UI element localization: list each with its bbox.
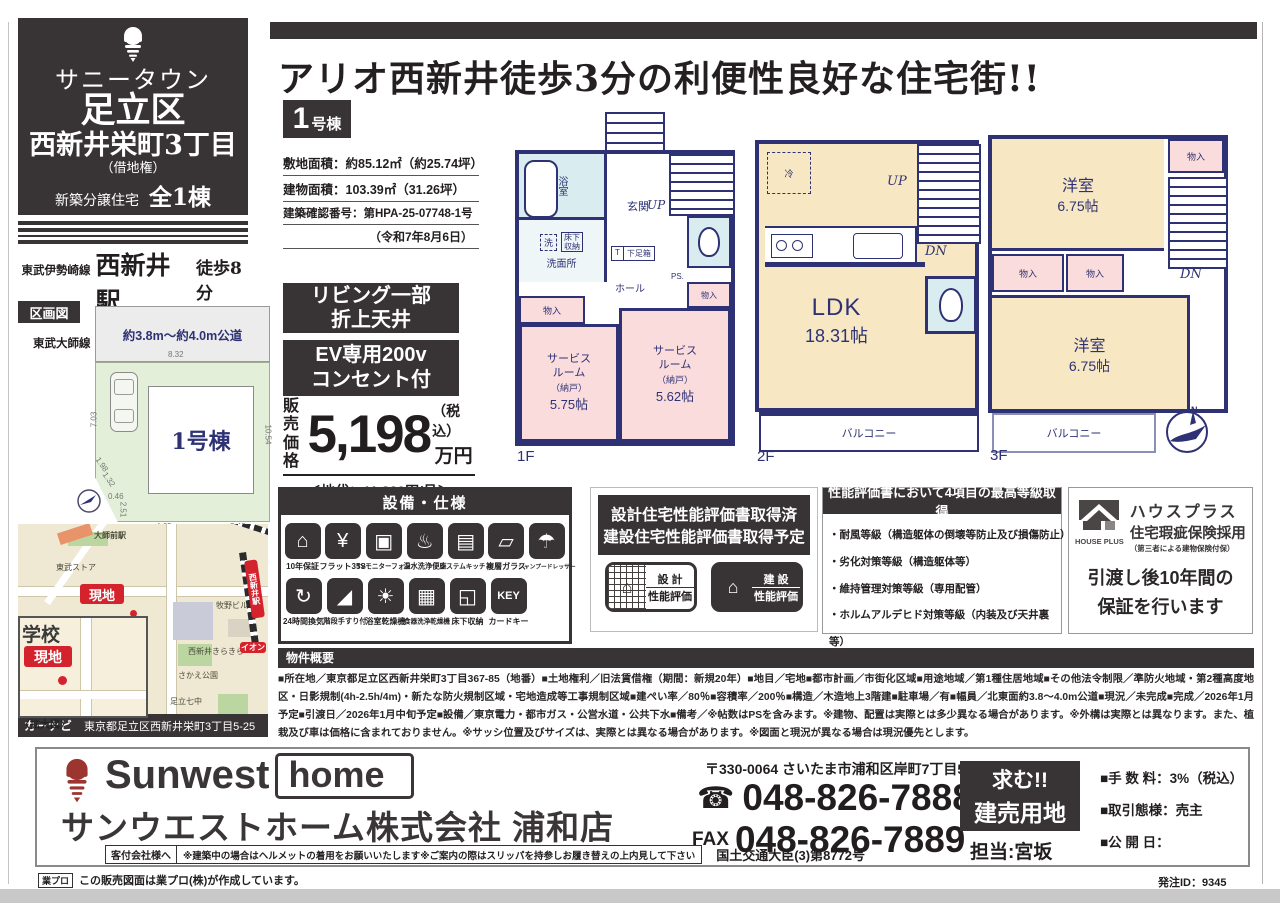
map-inset: 学校 現地: [18, 616, 148, 718]
map-label-daishimae: 大師前駅: [94, 530, 126, 541]
stair-handrail-icon: ◢: [327, 578, 363, 614]
property-overview: 物件概要 ■所在地／東京都足立区西新井栄町3丁目367-85（地番）■土地権利／…: [278, 648, 1254, 743]
dim-diag-3: 0.46: [108, 492, 124, 501]
floorplan-2f: 冷 UP DN LDK 18.31帖: [755, 140, 983, 462]
overview-text: ■所在地／東京都足立区西新井栄町3丁目367-85（地番）■土地権利／旧法賃借権…: [278, 671, 1254, 743]
ventilation-24h-icon: ↻: [286, 578, 322, 614]
room-underfloor-storage: 床下 収納: [561, 232, 583, 252]
logo-sunwest: Sunwest: [105, 753, 269, 798]
serviceroom1-name: サービス ルーム: [547, 353, 591, 381]
compass-icon: N: [1160, 403, 1214, 457]
credit-line: 業プロ この販売図面は業プロ(株)が作成しています。: [38, 872, 305, 888]
price-block: 販売 価格 5,198 （税込） 万円 ＜地代：11,820円/月＞: [283, 398, 475, 501]
car-navi-address: 東京都足立区西新井栄町3丁目5-25: [84, 718, 255, 734]
company-name: サンウエストホーム株式会社 浦和店: [61, 801, 614, 849]
property-type-row: 新築分譲住宅 全1棟: [18, 178, 248, 212]
order-id: 発注ID：9345: [1158, 874, 1226, 890]
plot-building: 1号棟: [148, 386, 254, 494]
room-entrance: 玄関: [627, 198, 649, 214]
fee-line: ■手 数 料：3%（税込）: [1100, 767, 1243, 787]
want-land-box: 求む!! 建売用地: [960, 761, 1080, 831]
shoe-t: T: [611, 246, 624, 261]
bath-dryer-icon: ☀: [368, 578, 404, 614]
leasehold-note: （借地権）: [18, 161, 248, 178]
warranty-10y-icon: ⌂: [285, 523, 321, 559]
inset-enlarge-label: 〈拡大図〉: [20, 716, 70, 731]
balcony-3f: バルコニー: [992, 413, 1156, 453]
construction-badge-house-icon: ⌂: [714, 565, 752, 609]
map-label-ion: イオン: [240, 642, 266, 653]
evaluation-badges: ⌂ 設 計 性能評価 ⌂ 建 設 性能評価: [591, 562, 817, 612]
floor-label-2f: 2F: [757, 448, 775, 465]
feature-box-ev: EV専用200v コンセント付: [283, 340, 459, 396]
closet-1f-right: 物入: [701, 290, 717, 301]
property-town: 西新井栄町3丁目: [18, 130, 248, 161]
floor-label-1f: 1F: [517, 448, 535, 465]
map-label-kirakira: 西新井きらきら: [188, 646, 244, 657]
grades-header: 性能評価書において4項目の最高等級取得: [823, 488, 1061, 514]
price-tax: （税込）: [432, 401, 475, 441]
room3f-1-name: 洋室: [1062, 172, 1094, 196]
entrance-porch: [605, 112, 665, 154]
card-key-icon: KEY: [491, 578, 527, 614]
feature-box-ceiling: リビング一部 折上天井: [283, 283, 459, 333]
houseplus-logo-row: HOUSE PLUS ハウスプラス 住宅瑕疵保険採用 （第三者による建物保険付保…: [1069, 488, 1252, 554]
grade-deterioration: ・劣化対策等級（構造躯体等）: [829, 549, 1055, 576]
grades-box: 性能評価書において4項目の最高等級取得 ・耐風等級（構造躯体の倒壊等防止及び損傷…: [822, 487, 1062, 634]
shoe-box-label: 下足箱: [624, 246, 655, 261]
total-units: 全1棟: [149, 178, 211, 212]
evaluation-header: 設計住宅性能評価書取得済 建設住宅性能評価書取得予定: [598, 495, 810, 555]
equipment-box: 設備・仕様 ⌂10年保証 ¥フラット35S ▣TVモニターフォン ♨温水洗浄便座…: [278, 487, 572, 644]
stairs-dn-3f: DN: [1180, 267, 1202, 282]
ldk-size: 18.31帖: [805, 322, 868, 348]
price-row: 販売 価格 5,198 （税込） 万円: [283, 398, 475, 476]
stairs-up-2f: UP: [887, 174, 907, 189]
top-accent-bar: [270, 22, 1257, 39]
fax-number: 048-826-7889: [735, 819, 965, 861]
kitchen-counter: [765, 226, 917, 266]
want-line1: 求む!!: [992, 764, 1048, 794]
ps-label: PS.: [671, 272, 684, 281]
closet-3f-mid1: 物入: [1019, 267, 1037, 280]
equipment-row-1: ⌂10年保証 ¥フラット35S ▣TVモニターフォン ♨温水洗浄便座 ▤システム…: [281, 515, 569, 572]
map-label-sakae-park: さかえ公園: [178, 670, 218, 681]
room-hall: ホール: [615, 280, 645, 295]
warranty-line2: 住宅瑕疵保険採用: [1130, 522, 1246, 543]
notice-text: ※建築中の場合はヘルメットの着用をお願いいたします※ご案内の際はスリッパを持参し…: [177, 845, 702, 864]
plot-compass-icon: [76, 488, 102, 514]
flat35s-icon: ¥: [325, 523, 361, 559]
dim-left: 7.03: [89, 412, 98, 428]
room3f-2-size: 6.75帖: [1069, 356, 1110, 376]
unit-badge: 1 号棟: [283, 100, 351, 138]
fridge-label: 冷: [784, 167, 793, 180]
washlet-icon: ♨: [407, 523, 443, 559]
evaluation-line1: 設計住宅性能評価書取得済: [602, 503, 806, 525]
sunwest-lamp-icon: [59, 757, 95, 803]
room3f-2-name: 洋室: [1073, 332, 1105, 356]
spec-confirmation-date: （令和7年8月6日）: [283, 225, 479, 249]
contact-person: 担当:宮坂: [970, 837, 1052, 864]
tel-number: 048-826-7888: [742, 777, 972, 819]
station-walk-1: 徒歩8分: [196, 254, 256, 304]
overview-header: 物件概要: [278, 648, 1254, 668]
warranty-line1: ハウスプラス: [1130, 498, 1246, 522]
property-area: 足立区: [18, 93, 248, 130]
room-washroom: 洗面所: [547, 255, 577, 270]
divider-stripes: [18, 221, 248, 244]
dim-diag-4: 2.51: [118, 502, 127, 518]
stairs-dn-2f: DN: [925, 244, 947, 259]
design-badge-house-icon: ⌂: [608, 565, 646, 609]
houseplus-house-icon: [1077, 498, 1121, 532]
lamp-icon: [116, 26, 150, 62]
evaluation-line2: 建設住宅性能評価書取得予定: [602, 525, 806, 547]
tv-monitor-phone-icon: ▣: [366, 523, 402, 559]
page-bottom-strip: [0, 889, 1280, 903]
postal-address: 〒330-0064 さいたま市浦和区岸町7丁目5-4: [705, 759, 978, 779]
footer-box: Sunwest home サンウエストホーム株式会社 浦和店 客付会社様へ ※建…: [35, 747, 1250, 867]
page-edge-left: [8, 22, 9, 884]
unit-suffix: 号棟: [311, 113, 341, 134]
map-label-tobu-store: 東武ストア: [56, 562, 96, 573]
sunwest-logo: Sunwest home: [105, 753, 414, 799]
spec-list: 敷地面積：約85.12㎡（約25.74坪） 建物面積：103.39㎡（31.26…: [283, 150, 479, 249]
dishwasher-icon: ▦: [409, 578, 445, 614]
car-icon: [110, 372, 138, 432]
flyer-page: サニータウン 足立区 西新井栄町3丁目 （借地権） 新築分譲住宅 全1棟 東武伊…: [0, 0, 1280, 903]
plot-section-label: 区画図: [18, 301, 80, 323]
system-kitchen-icon: ▤: [448, 523, 484, 559]
deal-type-line: ■取引態様：売主: [1100, 799, 1203, 819]
headline: アリオ西新井徒歩3分の利便性良好な住宅街!!: [278, 50, 1041, 102]
warranty-box: HOUSE PLUS ハウスプラス 住宅瑕疵保険採用 （第三者による建物保険付保…: [1068, 487, 1253, 634]
price-unit-stack: （税込） 万円: [432, 401, 475, 468]
price-amount: 5,198: [308, 408, 431, 461]
design-evaluation-badge: ⌂ 設 計 性能評価: [605, 562, 697, 612]
closet-3f-top: 物入: [1187, 150, 1205, 163]
gyopro-logo: 業プロ: [38, 873, 73, 888]
construction-evaluation-badge: ⌂ 建 設 性能評価: [711, 562, 803, 612]
room-laundry: 洗: [540, 234, 557, 251]
shoe-box: T 下足箱: [611, 246, 655, 261]
grade-maintenance: ・維持管理対策等級（専用配管）: [829, 576, 1055, 603]
fax-row: FAX 048-826-7889: [692, 819, 965, 861]
area-map: 大師前駅 西新井駅 東武ストア アーク東山クリニック 牧野ビル 西新井きらきら …: [18, 524, 268, 737]
fax-label: FAX: [692, 829, 729, 851]
closet-1f-left: 物入: [543, 304, 561, 317]
spec-confirmation-no: 建築確認番号：第HPA-25-07748-1号: [283, 202, 479, 225]
room3f-1-size: 6.75帖: [1057, 196, 1098, 216]
phone-icon: ☎: [697, 781, 734, 816]
houseplus-logo-text: HOUSE PLUS: [1075, 537, 1124, 546]
serviceroom2-name: サービス ルーム: [653, 345, 697, 373]
dim-right: 10.54: [264, 424, 273, 444]
page-edge-right: [1262, 22, 1263, 884]
double-glazing-icon: ▱: [488, 523, 524, 559]
serviceroom1-size: 5.75帖: [550, 394, 588, 413]
shampoo-dresser-icon: ☂: [529, 523, 565, 559]
want-line2: 建売用地: [974, 794, 1066, 828]
unit-number: 1: [293, 102, 310, 136]
notice-label: 客付会社様へ: [105, 845, 177, 864]
ldk-name: LDK: [805, 294, 868, 322]
site-badge-inset: 現地: [24, 646, 72, 667]
warranty-body: 引渡し後10年間の 保証を行います: [1069, 564, 1252, 622]
site-dot-inset: [58, 676, 67, 685]
equipment-header: 設備・仕様: [281, 490, 569, 515]
serviceroom2-sub: （納戸）: [657, 373, 693, 386]
grade-wind: ・耐風等級（構造躯体の倒壊等防止及び損傷防止）: [829, 522, 1055, 549]
balcony-2f: バルコニー: [759, 412, 979, 452]
credit-text: この販売図面は業プロ(株)が作成しています。: [79, 872, 305, 888]
floorplan-1f: 浴室 洗 床下 収納 洗面所 玄関 T 下足箱 UP: [515, 112, 743, 464]
closet-3f-mid2: 物入: [1086, 267, 1104, 280]
rail-line-1: 東武伊勢崎線: [18, 262, 91, 278]
site-badge-main: 現地: [80, 584, 124, 604]
inset-school-label: 学校: [22, 620, 60, 647]
spec-building-area: 建物面積：103.39㎡（31.26坪）: [283, 176, 479, 202]
warranty-line3: （第三者による建物保険付保）: [1130, 543, 1246, 554]
serviceroom2-size: 5.62帖: [656, 386, 694, 405]
price-unit: 万円: [435, 441, 473, 468]
map-label-makino: 牧野ビル: [216, 600, 248, 611]
svg-text:N: N: [1191, 405, 1198, 415]
stairs-up-1f: UP: [647, 198, 665, 212]
plot-diagram: 約3.8m～約4.0m公道 1号棟 8.32 7.03 10.54 4.65 2…: [18, 300, 268, 522]
dim-top: 8.32: [168, 350, 184, 359]
railway-line: [139, 524, 268, 543]
floorplan-3f: 洋室 6.75帖 物入 DN 物入 物入 洋室 6.75帖 バルコニ: [988, 135, 1233, 465]
map-label-adachi7: 足立七中: [170, 696, 202, 707]
logo-home: home: [275, 753, 413, 799]
underfloor-storage-icon: ◱: [450, 578, 486, 614]
room-ldk: LDK 18.31帖: [805, 294, 868, 348]
grades-list: ・耐風等級（構造躯体の倒壊等防止及び損傷防止） ・劣化対策等級（構造躯体等） ・…: [823, 514, 1061, 656]
floor-label-3f: 3F: [990, 447, 1008, 464]
equipment-row-2: ↻24時間換気 ◢階段手すり付 ☀浴室乾燥機 ▦食器洗浄乾燥機 ◱床下収納 KE…: [281, 572, 569, 627]
tel-row: ☎ 048-826-7888: [697, 777, 973, 819]
price-label: 販売 価格: [283, 398, 308, 472]
open-date-line: ■公 開 日：: [1100, 831, 1170, 851]
evaluation-box: 設計住宅性能評価書取得済 建設住宅性能評価書取得予定 ⌂ 設 計 性能評価 ⌂ …: [590, 487, 818, 632]
property-title-box: サニータウン 足立区 西新井栄町3丁目 （借地権） 新築分譲住宅 全1棟: [18, 18, 248, 215]
serviceroom1-sub: （納戸）: [551, 381, 587, 394]
property-type: 新築分譲住宅: [55, 190, 139, 210]
spec-land-area: 敷地面積：約85.12㎡（約25.74坪）: [283, 150, 479, 176]
